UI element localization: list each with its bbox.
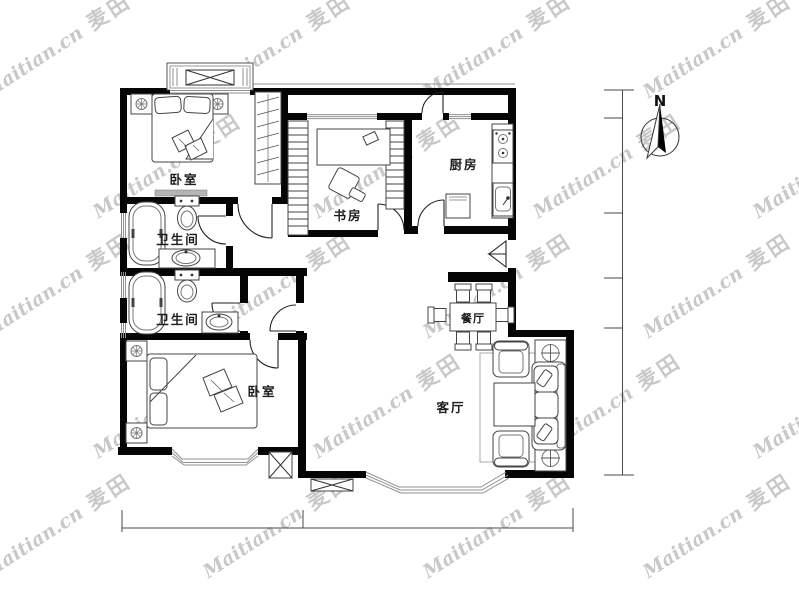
entry-double-door xyxy=(489,241,506,267)
footrest xyxy=(348,187,365,202)
column-marker xyxy=(311,479,353,491)
washbasin xyxy=(202,312,238,333)
bay-window-top xyxy=(167,63,253,94)
label-bathroom-bottom: 卫生间 xyxy=(156,312,200,327)
desk xyxy=(317,129,390,165)
column-marker xyxy=(269,452,292,478)
armchair-top xyxy=(493,341,529,377)
bathroom-top-door xyxy=(198,216,226,244)
sink xyxy=(493,183,513,216)
bedroom-top-door xyxy=(238,204,272,238)
vestibule-door xyxy=(270,305,296,331)
label-living: 客厅 xyxy=(435,400,465,415)
toilet xyxy=(175,196,199,230)
label-bathroom-top: 卫生间 xyxy=(156,232,200,247)
north-compass: N xyxy=(641,92,679,158)
bay-window-bedroom-bottom xyxy=(172,449,258,465)
north-strip-door xyxy=(422,92,443,113)
label-kitchen: 厨房 xyxy=(449,157,478,172)
label-bedroom-bottom: 卧室 xyxy=(247,384,276,399)
wardrobe xyxy=(255,92,281,184)
coffee-table xyxy=(494,383,535,426)
pillow xyxy=(150,393,167,425)
fridge xyxy=(446,194,470,218)
sofa-three-seat xyxy=(532,362,566,450)
living-furniture xyxy=(480,340,566,471)
north-label: N xyxy=(654,92,667,110)
toilet xyxy=(175,270,199,302)
bathroom-top-window xyxy=(122,213,126,238)
bedroom-top-furniture xyxy=(131,92,281,196)
washbasin xyxy=(159,249,215,268)
stove xyxy=(493,130,513,163)
bay-window-living xyxy=(366,472,509,493)
pillow xyxy=(154,96,181,114)
armchair-bottom xyxy=(493,431,529,467)
label-bedroom-top: 卧室 xyxy=(169,172,198,187)
compass-needle-light xyxy=(647,104,660,158)
low-cabinet xyxy=(155,190,207,196)
bookshelf-left xyxy=(288,121,308,235)
pillow xyxy=(150,358,167,390)
label-study: 书房 xyxy=(333,208,362,223)
label-dining: 餐厅 xyxy=(460,311,485,325)
bedroom-bottom-furniture xyxy=(126,341,257,443)
floor-plan-drawing: N 卧室 卫生间 卫生间 书房 厨房 餐厅 客厅 卧室 xyxy=(0,0,799,600)
kitchen-door xyxy=(418,200,444,226)
pillow xyxy=(184,96,211,113)
floor-plan-stage: Maitian.cn麦田Maitian.cn麦田Maitian.cn麦田Mait… xyxy=(0,0,799,600)
